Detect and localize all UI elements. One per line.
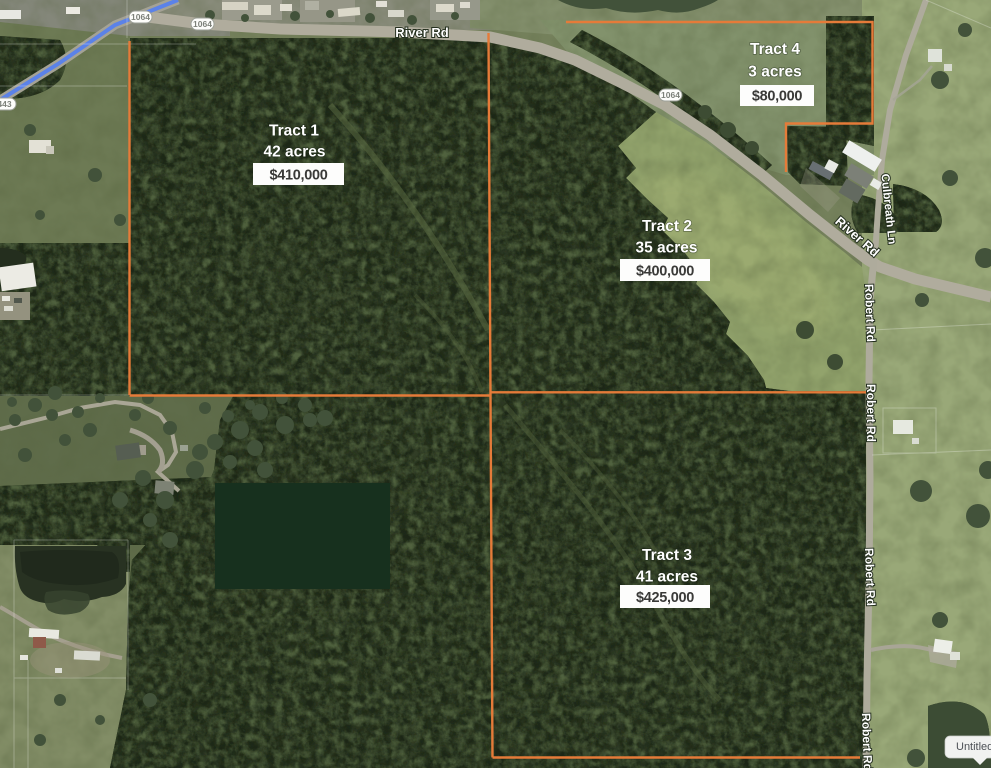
svg-text:Robert Rd: Robert Rd (862, 548, 878, 606)
svg-text:1064: 1064 (193, 19, 212, 29)
svg-text:Tract 4: Tract 4 (750, 41, 800, 58)
svg-text:3 acres: 3 acres (748, 64, 801, 81)
svg-text:42 acres: 42 acres (263, 144, 325, 161)
svg-text:443: 443 (0, 99, 12, 109)
svg-text:Robert Rd: Robert Rd (862, 284, 878, 342)
svg-text:Tract 2: Tract 2 (642, 218, 692, 235)
svg-text:1064: 1064 (131, 12, 150, 22)
svg-text:35 acres: 35 acres (635, 240, 697, 257)
svg-text:$80,000: $80,000 (752, 89, 803, 105)
svg-text:River Rd: River Rd (395, 25, 449, 40)
svg-text:$400,000: $400,000 (636, 264, 694, 280)
svg-text:$410,000: $410,000 (269, 168, 327, 184)
svg-text:Tract 3: Tract 3 (642, 547, 692, 564)
svg-text:Robert Rd: Robert Rd (864, 384, 878, 442)
svg-text:Tract 1: Tract 1 (269, 123, 319, 140)
svg-text:41 acres: 41 acres (636, 569, 698, 586)
svg-text:Untitled: Untitled (956, 741, 991, 753)
svg-text:Robert Rd: Robert Rd (859, 713, 875, 768)
svg-text:$425,000: $425,000 (636, 590, 694, 606)
svg-text:1064: 1064 (661, 90, 680, 100)
